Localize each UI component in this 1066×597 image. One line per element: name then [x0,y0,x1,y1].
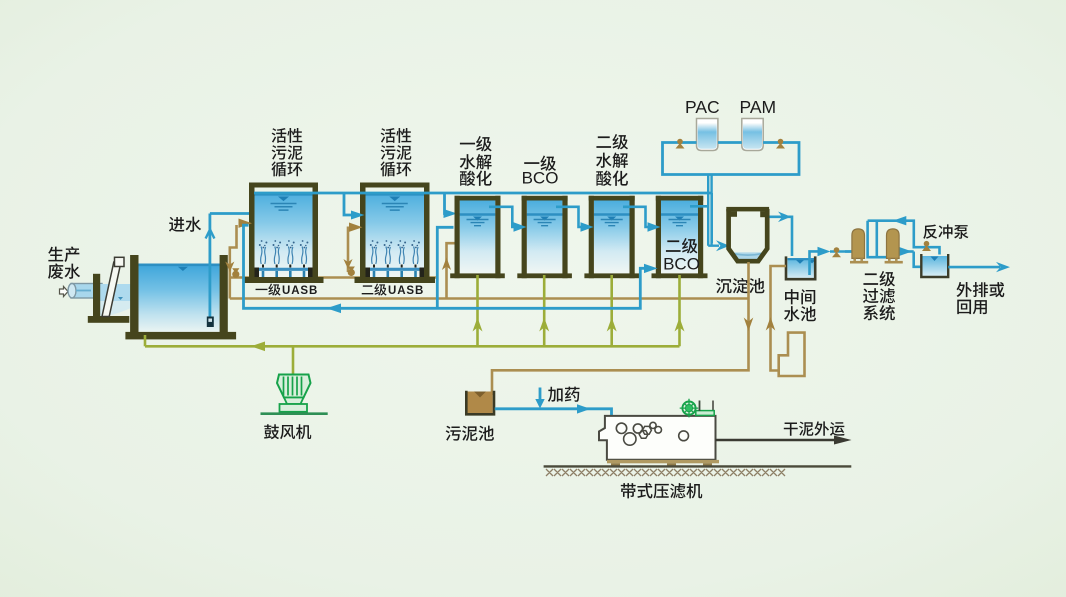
svg-text:BCO: BCO [663,255,700,274]
svg-text:PAC: PAC [685,97,720,117]
svg-text:PAM: PAM [740,97,777,117]
svg-text:UASB: UASB [388,285,424,297]
svg-text:BCO: BCO [522,169,559,188]
svg-text:UASB: UASB [282,285,318,297]
